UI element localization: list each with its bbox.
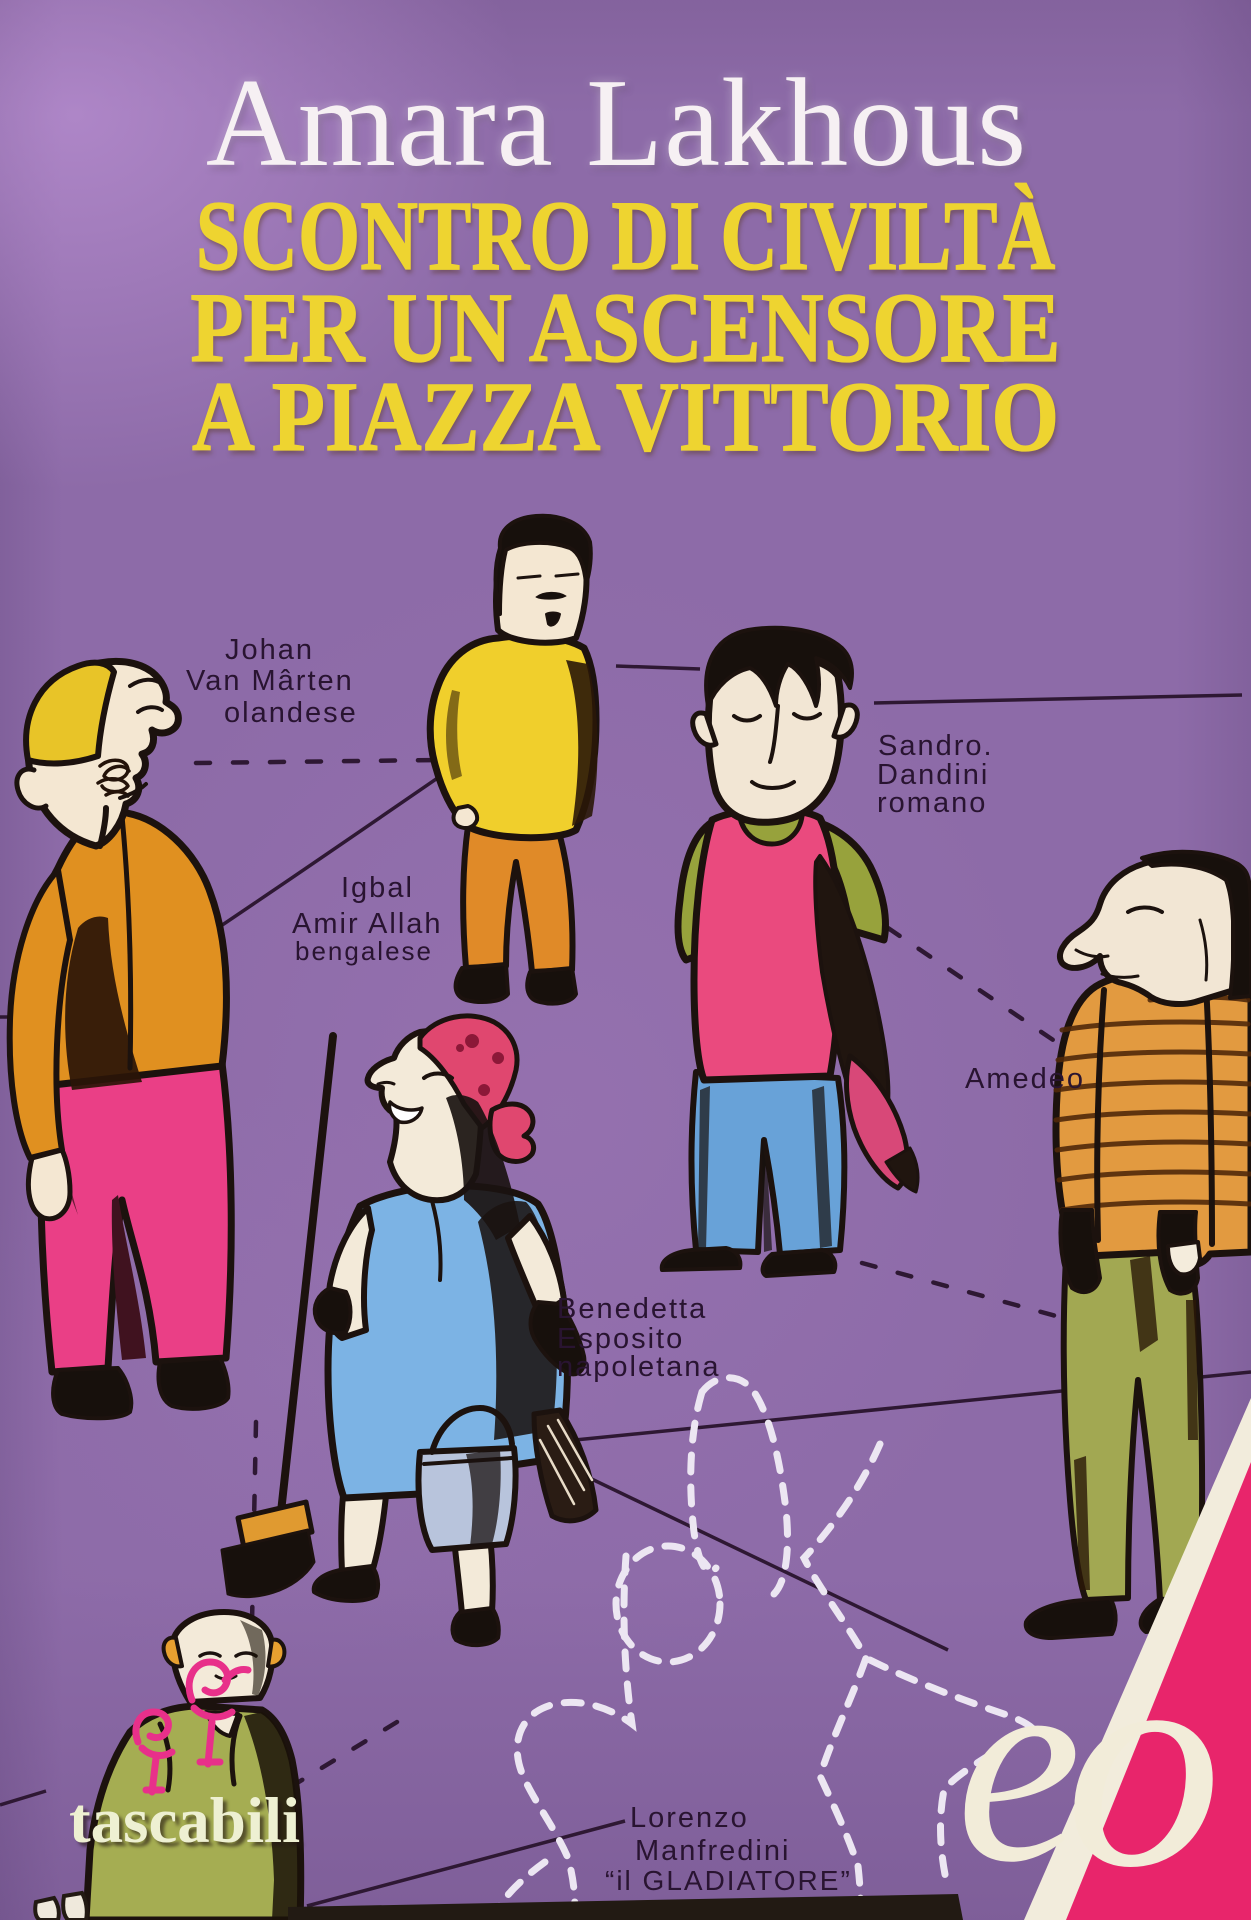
svg-text:Sandro.: Sandro. xyxy=(878,730,994,762)
svg-text:romano: romano xyxy=(877,787,987,819)
svg-text:Amedeo: Amedeo xyxy=(965,1063,1085,1095)
svg-text:Benedetta: Benedetta xyxy=(557,1293,707,1325)
svg-text:olandese: olandese xyxy=(224,697,358,729)
svg-text:Johan: Johan xyxy=(225,634,314,666)
svg-text:Van Mârten: Van Mârten xyxy=(186,665,354,697)
svg-text:“il GLADIATORE”: “il GLADIATORE” xyxy=(605,1865,852,1896)
svg-text:Igbal: Igbal xyxy=(341,872,414,904)
svg-text:o: o xyxy=(1065,1592,1222,1920)
svg-text:napoletana: napoletana xyxy=(557,1351,721,1383)
svg-text:Manfredini: Manfredini xyxy=(635,1835,790,1867)
svg-text:bengalese: bengalese xyxy=(295,936,433,966)
svg-text:e: e xyxy=(956,1608,1082,1920)
svg-text:Lorenzo: Lorenzo xyxy=(630,1802,749,1834)
